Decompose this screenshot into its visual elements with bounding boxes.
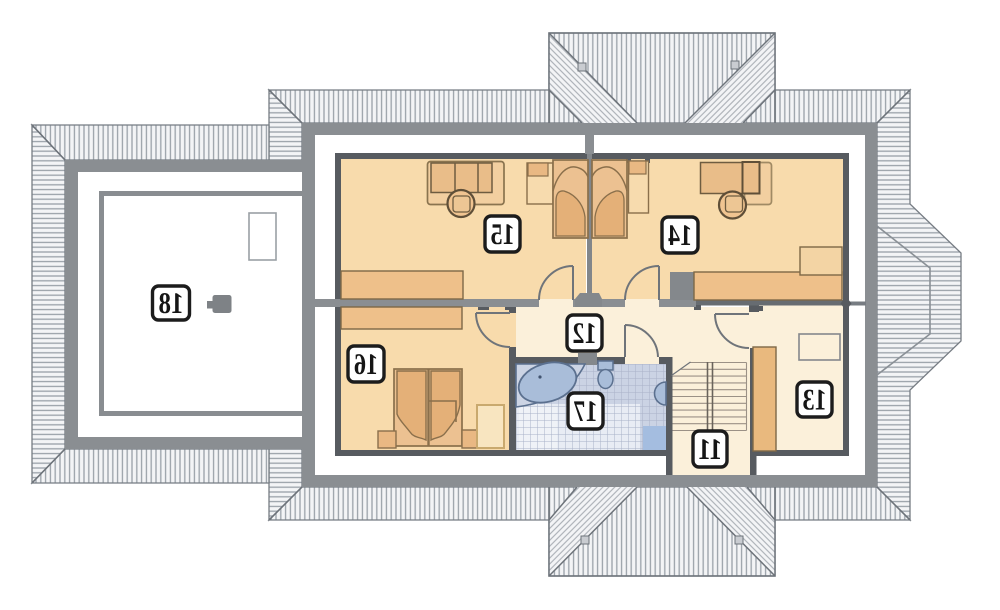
- svg-text:15: 15: [491, 218, 515, 251]
- svg-text:12: 12: [573, 317, 597, 350]
- svg-text:13: 13: [803, 384, 827, 417]
- svg-text:17: 17: [574, 395, 598, 428]
- svg-text:11: 11: [698, 433, 722, 466]
- svg-text:16: 16: [354, 348, 378, 381]
- svg-text:14: 14: [668, 219, 692, 252]
- svg-text:18: 18: [159, 287, 184, 320]
